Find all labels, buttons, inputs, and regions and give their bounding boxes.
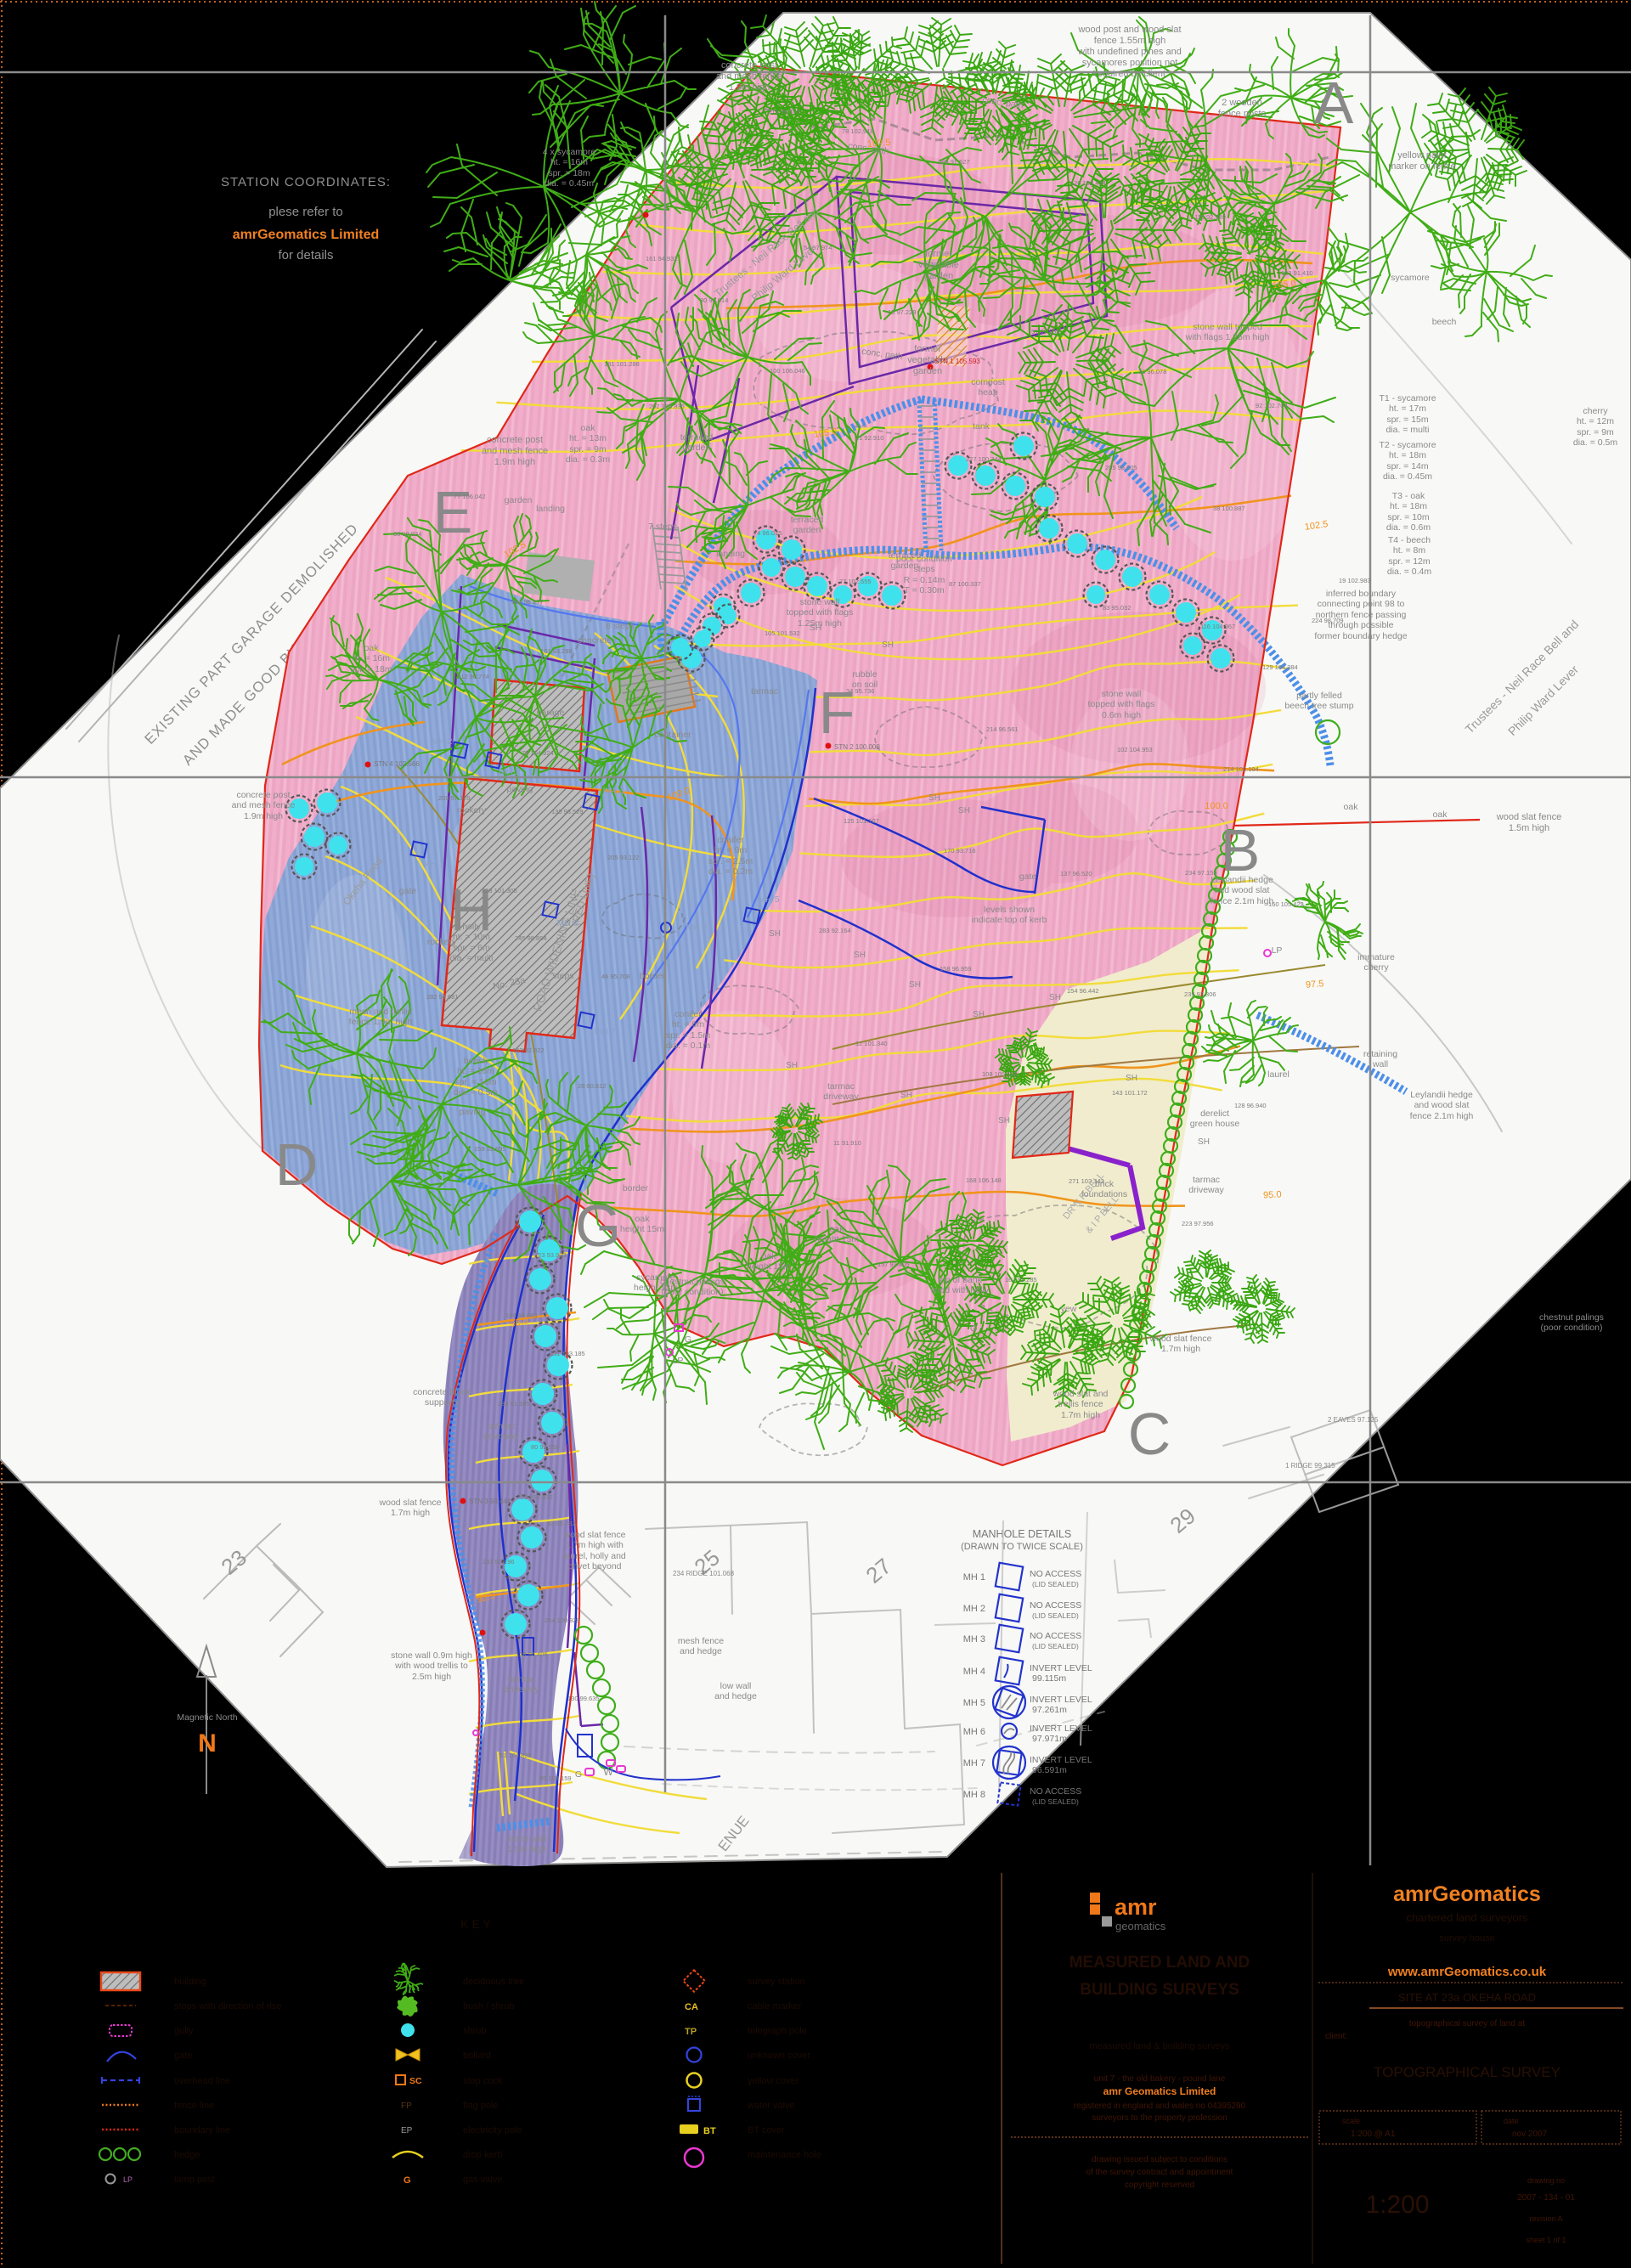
svg-text:scale: scale xyxy=(1342,2117,1360,2125)
svg-text:dia. = 0.45m: dia. = 0.45m xyxy=(1383,471,1432,482)
svg-text:212 96.774: 212 96.774 xyxy=(457,673,489,680)
svg-text:holly: holly xyxy=(462,922,481,932)
svg-text:amrGeomatics Limited: amrGeomatics Limited xyxy=(233,228,380,242)
svg-text:STN 1 105.593: STN 1 105.593 xyxy=(934,358,980,365)
svg-text:spr. = 18m: spr. = 18m xyxy=(548,168,590,178)
svg-text:100.0: 100.0 xyxy=(1205,801,1228,811)
svg-text:K E Y: K E Y xyxy=(460,1917,491,1931)
svg-text:wood slat fence: wood slat fence xyxy=(563,1530,626,1540)
svg-text:W: W xyxy=(603,1766,613,1778)
svg-text:lamp post: lamp post xyxy=(174,2175,215,2185)
svg-text:date: date xyxy=(1504,2117,1519,2125)
svg-text:TP: TP xyxy=(685,2027,697,2037)
svg-text:border: border xyxy=(623,1183,649,1193)
svg-text:36 96.078: 36 96.078 xyxy=(1138,368,1166,375)
svg-text:amrGeomatics: amrGeomatics xyxy=(1393,1882,1541,1906)
svg-text:TOPOGRAPHICAL SURVEY: TOPOGRAPHICAL SURVEY xyxy=(1374,2064,1560,2080)
svg-text:stone wall: stone wall xyxy=(800,597,840,607)
svg-text:and mesh fence: and mesh fence xyxy=(232,800,296,810)
svg-text:8 steps: 8 steps xyxy=(606,621,635,631)
svg-text:N: N xyxy=(198,1729,217,1757)
svg-text:stone wall: stone wall xyxy=(1102,689,1142,699)
svg-text:159 92.695: 159 92.695 xyxy=(474,1145,506,1153)
svg-text:G: G xyxy=(685,1334,691,1345)
svg-text:T2 - sycamore: T2 - sycamore xyxy=(1379,440,1436,450)
svg-text:landing: landing xyxy=(536,504,565,514)
svg-text:205 95.605: 205 95.605 xyxy=(1105,464,1137,471)
svg-text:Leylandii hedge: Leylandii hedge xyxy=(1211,875,1273,885)
svg-text:indicate top of kerb: indicate top of kerb xyxy=(972,915,1047,925)
svg-text:Leylandii hedge: Leylandii hedge xyxy=(1410,1090,1473,1100)
svg-text:1.9m high: 1.9m high xyxy=(494,457,535,467)
svg-text:MANHOLE DETAILS: MANHOLE DETAILS xyxy=(973,1528,1071,1540)
svg-text:130 99.635: 130 99.635 xyxy=(567,1695,600,1702)
svg-text:143 101.172: 143 101.172 xyxy=(1112,1089,1148,1097)
svg-text:STATION COORDINATES:: STATION COORDINATES: xyxy=(221,175,391,189)
svg-text:1.7m high with: 1.7m high with xyxy=(566,1540,624,1550)
svg-text:fence 2.1m high: fence 2.1m high xyxy=(1410,1111,1474,1121)
svg-text:214 103.104: 214 103.104 xyxy=(1223,765,1259,773)
svg-text:fence 1.55m high: fence 1.55m high xyxy=(1094,36,1165,46)
svg-text:amr: amr xyxy=(1115,1894,1157,1920)
svg-text:spr. = 1.5m: spr. = 1.5m xyxy=(666,1030,710,1041)
svg-text:telegraph pole: telegraph pole xyxy=(748,2026,807,2036)
svg-text:amr Geomatics Limited: amr Geomatics Limited xyxy=(1103,2085,1216,2097)
svg-text:laurel: laurel xyxy=(1267,1069,1290,1080)
svg-text:13 97.229: 13 97.229 xyxy=(888,308,916,316)
svg-text:LP: LP xyxy=(1272,945,1283,956)
svg-text:11 91.910: 11 91.910 xyxy=(833,1139,861,1147)
svg-text:149 94.683: 149 94.683 xyxy=(505,1312,538,1319)
svg-text:95.0: 95.0 xyxy=(1263,1189,1282,1200)
svg-text:1 RIDGE 99.315: 1 RIDGE 99.315 xyxy=(1285,1462,1335,1470)
svg-text:drop kerb: drop kerb xyxy=(463,2150,502,2160)
svg-text:97.5: 97.5 xyxy=(1306,979,1324,990)
svg-text:tarmac: tarmac xyxy=(508,1674,535,1684)
svg-text:MH 7: MH 7 xyxy=(594,1027,615,1037)
svg-text:283 91.385: 283 91.385 xyxy=(498,1400,530,1408)
svg-text:ht. = 16m: ht. = 16m xyxy=(550,157,588,167)
svg-text:0.6m high: 0.6m high xyxy=(1102,710,1141,720)
svg-text:yew: yew xyxy=(1061,1304,1077,1314)
svg-text:gully: gully xyxy=(174,2026,194,2036)
svg-text:A: A xyxy=(1314,70,1354,136)
svg-text:fence 2.1m high: fence 2.1m high xyxy=(1211,896,1274,906)
svg-text:183 91.410: 183 91.410 xyxy=(1281,269,1313,277)
svg-text:former: former xyxy=(925,249,952,259)
svg-text:SH: SH xyxy=(810,623,822,633)
svg-text:and mesh fence: and mesh fence xyxy=(482,446,548,456)
svg-text:MH 2: MH 2 xyxy=(431,736,452,747)
svg-text:spr. = 14m: spr. = 14m xyxy=(1386,461,1429,471)
svg-text:beech tree stump: beech tree stump xyxy=(1284,701,1353,711)
svg-text:97.261m: 97.261m xyxy=(1032,1705,1067,1715)
svg-text:spr. = 10m: spr. = 10m xyxy=(454,1077,497,1087)
svg-text:geomatics: geomatics xyxy=(1115,1920,1166,1932)
svg-text:garden: garden xyxy=(924,271,953,281)
svg-text:INVERT LEVEL: INVERT LEVEL xyxy=(1030,1755,1092,1765)
svg-text:46 95.708: 46 95.708 xyxy=(601,973,629,980)
svg-text:74 96.015: 74 96.015 xyxy=(753,529,782,537)
svg-text:1.5m high: 1.5m high xyxy=(1509,823,1549,833)
svg-text:CA: CA xyxy=(685,2002,698,2012)
svg-text:154 96.442: 154 96.442 xyxy=(1067,987,1099,995)
svg-text:inferred boundary: inferred boundary xyxy=(1326,589,1397,599)
svg-text:dia. = 0.1m: dia. = 0.1m xyxy=(666,1041,710,1051)
svg-text:MH 7: MH 7 xyxy=(963,1758,985,1769)
svg-text:oak: oak xyxy=(364,643,380,653)
svg-text:plese refer to: plese refer to xyxy=(268,205,343,219)
svg-text:driveway: driveway xyxy=(823,1092,859,1102)
svg-text:(LID SEALED): (LID SEALED) xyxy=(1032,1580,1079,1588)
svg-text:285 91.527: 285 91.527 xyxy=(938,158,970,166)
svg-text:sheet 1 of 1: sheet 1 of 1 xyxy=(1526,2236,1566,2244)
svg-text:spr. = 6m: spr. = 6m xyxy=(453,943,490,953)
svg-text:T3 - oak: T3 - oak xyxy=(1392,491,1425,501)
svg-text:oak: oak xyxy=(635,1214,651,1224)
svg-text:SH: SH xyxy=(854,951,866,960)
svg-text:stone wall 0.9m high: stone wall 0.9m high xyxy=(391,1650,472,1661)
svg-text:223 93.903: 223 93.903 xyxy=(534,1251,567,1259)
svg-text:yellow cover: yellow cover xyxy=(748,2076,799,2086)
svg-text:garden: garden xyxy=(683,443,711,453)
svg-text:51 97.855: 51 97.855 xyxy=(1031,328,1059,336)
svg-text:SH: SH xyxy=(1198,1137,1210,1147)
svg-text:spr. = 15m: spr. = 15m xyxy=(1386,415,1429,425)
svg-text:SH: SH xyxy=(973,1010,985,1019)
svg-text:34 95.736: 34 95.736 xyxy=(846,687,874,695)
svg-text:LP: LP xyxy=(673,1356,684,1366)
svg-text:survey station: survey station xyxy=(748,1977,805,1987)
svg-text:(DRAWN TO TWICE SCALE): (DRAWN TO TWICE SCALE) xyxy=(961,1542,1083,1552)
svg-text:concrete post: concrete post xyxy=(236,790,290,800)
svg-text:SH: SH xyxy=(1126,1074,1137,1083)
svg-text:surveyors to the property prof: surveyors to the property profession xyxy=(1092,2113,1227,2123)
svg-text:NO ACCESS: NO ACCESS xyxy=(1030,1569,1081,1579)
svg-text:bollard: bollard xyxy=(463,2051,491,2061)
svg-text:108 105.153: 108 105.153 xyxy=(982,1070,1018,1078)
svg-text:cable marker: cable marker xyxy=(748,2001,802,2011)
svg-text:209 97.109: 209 97.109 xyxy=(438,794,471,802)
svg-text:garden: garden xyxy=(793,525,821,535)
svg-text:BT cover: BT cover xyxy=(748,2125,785,2135)
svg-text:MH 5: MH 5 xyxy=(963,1698,985,1708)
svg-text:MH 3: MH 3 xyxy=(499,767,520,777)
svg-text:levels shown: levels shown xyxy=(984,905,1035,915)
svg-text:116 104.967: 116 104.967 xyxy=(1200,623,1235,630)
svg-text:100 106.046: 100 106.046 xyxy=(770,367,805,375)
svg-text:survey house: survey house xyxy=(1439,1933,1494,1944)
svg-text:D: D xyxy=(275,1131,319,1198)
svg-text:boundary line: boundary line xyxy=(174,2125,230,2135)
svg-text:75 104.924: 75 104.924 xyxy=(522,749,554,757)
svg-text:(LID SEALED): (LID SEALED) xyxy=(1032,1611,1079,1620)
svg-text:landing: landing xyxy=(716,549,745,559)
svg-text:wall: wall xyxy=(1372,1059,1388,1069)
svg-text:SH: SH xyxy=(786,1061,798,1070)
svg-text:233 93.196: 233 93.196 xyxy=(483,1558,515,1566)
svg-text:spr. = 9m: spr. = 9m xyxy=(569,444,607,454)
svg-text:87 100.337: 87 100.337 xyxy=(949,580,981,588)
svg-text:80 92.553: 80 92.553 xyxy=(531,1443,559,1451)
svg-text:overhead line: overhead line xyxy=(174,2076,230,2086)
svg-text:wood slat and: wood slat and xyxy=(1053,1389,1109,1399)
svg-text:maintenance hole: maintenance hole xyxy=(748,2150,821,2160)
svg-text:SH: SH xyxy=(909,980,921,990)
svg-text:of the survey contract and app: of the survey contract and appointment xyxy=(1086,2168,1233,2177)
svg-text:concrete post: concrete post xyxy=(487,435,543,445)
svg-text:wood slat fence: wood slat fence xyxy=(379,1498,442,1508)
svg-text:78 102.918: 78 102.918 xyxy=(842,127,874,135)
svg-text:tarmac: tarmac xyxy=(751,686,778,697)
svg-text:ht. = 9m: ht. = 9m xyxy=(714,845,747,855)
svg-text:ht. = 18m: ht. = 18m xyxy=(1390,501,1427,511)
svg-text:rockery: rockery xyxy=(457,805,487,815)
svg-text:electricity pole: electricity pole xyxy=(463,2125,522,2135)
svg-text:spr. = 18m: spr. = 18m xyxy=(350,664,392,674)
svg-text:former: former xyxy=(914,344,941,354)
svg-text:137 96.520: 137 96.520 xyxy=(1060,870,1092,877)
svg-text:LP: LP xyxy=(123,2175,133,2184)
svg-text:concrete block: concrete block xyxy=(413,1387,471,1397)
svg-text:ht. = 17m: ht. = 17m xyxy=(1389,403,1426,414)
svg-text:revision A: revision A xyxy=(1529,2214,1562,2223)
svg-text:7 steps: 7 steps xyxy=(648,522,677,532)
svg-text:building: building xyxy=(174,1977,206,1987)
svg-text:1.9m high: 1.9m high xyxy=(729,82,770,93)
svg-text:245 98.894: 245 98.894 xyxy=(515,934,547,942)
svg-text:161 94.932: 161 94.932 xyxy=(646,255,678,262)
svg-text:NO ACCESS: NO ACCESS xyxy=(1030,1631,1081,1641)
svg-text:registered in england and wale: registered in england and wales no 04395… xyxy=(1074,2102,1246,2111)
svg-text:ht. = 8m: ht. = 8m xyxy=(1393,545,1425,556)
svg-text:gate: gate xyxy=(399,886,417,896)
svg-text:gas valve: gas valve xyxy=(463,2175,502,2185)
svg-text:and wood slat: and wood slat xyxy=(1215,885,1270,895)
svg-text:dia. = 0.2m: dia. = 0.2m xyxy=(708,866,753,877)
svg-text:privet beyond: privet beyond xyxy=(567,1561,621,1571)
svg-text:cherry: cherry xyxy=(1583,406,1608,416)
svg-text:224 98.709: 224 98.709 xyxy=(1312,617,1344,624)
svg-text:FP: FP xyxy=(401,2102,412,2111)
svg-text:99.115m: 99.115m xyxy=(1032,1673,1066,1684)
svg-text:nov 2007: nov 2007 xyxy=(1512,2130,1548,2139)
svg-text:1.5m high: 1.5m high xyxy=(507,1844,546,1854)
svg-text:1:200: 1:200 xyxy=(1365,2191,1429,2219)
svg-text:with wood trellis to: with wood trellis to xyxy=(394,1661,468,1671)
svg-text:tarmac: tarmac xyxy=(1193,1175,1220,1185)
svg-text:R = 0.14m: R = 0.14m xyxy=(904,575,945,585)
svg-text:120 103.474: 120 103.474 xyxy=(1070,179,1106,187)
svg-text:MH 3: MH 3 xyxy=(963,1634,985,1645)
svg-text:tarmac: tarmac xyxy=(827,1081,855,1092)
svg-text:38 100.887: 38 100.887 xyxy=(1213,505,1245,512)
svg-text:conifer: conifer xyxy=(717,835,744,845)
svg-text:1.7m high: 1.7m high xyxy=(391,1508,430,1518)
svg-text:170 93.716: 170 93.716 xyxy=(944,847,976,855)
svg-text:height 15m: height 15m xyxy=(815,1234,859,1244)
svg-text:oak: oak xyxy=(1344,802,1359,812)
svg-text:www.amrGeomatics.co.uk: www.amrGeomatics.co.uk xyxy=(1387,1965,1547,1979)
svg-text:92 102.708: 92 102.708 xyxy=(1256,402,1288,409)
svg-text:sycamore: sycamore xyxy=(636,1272,675,1283)
svg-text:for details: for details xyxy=(278,248,333,262)
svg-text:C: C xyxy=(1128,1401,1171,1467)
svg-text:wood slat fence: wood slat fence xyxy=(1149,1334,1212,1344)
svg-text:ht. = 13m: ht. = 13m xyxy=(569,433,607,443)
svg-text:partly felled: partly felled xyxy=(1296,691,1342,701)
svg-text:MH 4: MH 4 xyxy=(602,787,624,797)
svg-text:garden: garden xyxy=(913,366,942,376)
svg-text:128 96.940: 128 96.940 xyxy=(1234,1102,1267,1109)
svg-text:283 92.164: 283 92.164 xyxy=(819,927,851,934)
svg-text:poor condition: poor condition xyxy=(896,554,952,564)
svg-text:vegetable: vegetable xyxy=(918,260,959,270)
svg-text:138 93.529: 138 93.529 xyxy=(551,808,584,815)
svg-text:container: container xyxy=(654,730,691,740)
svg-text:topped with flags: topped with flags xyxy=(1088,699,1155,709)
svg-text:paving: paving xyxy=(507,784,533,794)
svg-text:topped with flags: topped with flags xyxy=(787,607,854,618)
svg-text:28 90.812: 28 90.812 xyxy=(578,1082,606,1090)
svg-text:and wood slat: and wood slat xyxy=(1414,1100,1470,1110)
svg-text:ht. = 18m: ht. = 18m xyxy=(1389,450,1426,460)
svg-text:4 x sycamore: 4 x sycamore xyxy=(543,147,596,157)
svg-text:SH: SH xyxy=(900,1091,912,1100)
svg-text:T = 0.30m: T = 0.30m xyxy=(904,585,945,595)
svg-text:21 92.910: 21 92.910 xyxy=(855,434,883,442)
svg-text:spr. = 9m: spr. = 9m xyxy=(1577,427,1614,437)
svg-text:102 104.953: 102 104.953 xyxy=(1117,746,1153,753)
svg-text:157 93.405: 157 93.405 xyxy=(878,1261,910,1268)
svg-text:167 91.285: 167 91.285 xyxy=(1005,1276,1037,1284)
svg-text:INVERT LEVEL: INVERT LEVEL xyxy=(1030,1695,1092,1705)
svg-text:235 93.306: 235 93.306 xyxy=(1184,990,1216,998)
svg-text:concrete: concrete xyxy=(578,635,612,646)
svg-text:1.7m high: 1.7m high xyxy=(1161,1344,1200,1354)
svg-text:drawing issued subject to cond: drawing issued subject to conditions xyxy=(1092,2155,1227,2164)
svg-text:12 101.340: 12 101.340 xyxy=(855,1040,888,1047)
svg-text:30 96.014: 30 96.014 xyxy=(700,296,728,304)
svg-text:bush / shrub: bush / shrub xyxy=(463,2001,515,2011)
svg-text:MH 8: MH 8 xyxy=(963,1790,985,1800)
svg-text:EP: EP xyxy=(401,2126,413,2135)
svg-text:yellow paint: yellow paint xyxy=(1397,150,1446,161)
svg-text:MEASURED LAND AND: MEASURED LAND AND xyxy=(1069,1954,1250,1972)
svg-text:dia. = 0.45m: dia. = 0.45m xyxy=(545,178,594,189)
svg-text:drawing no: drawing no xyxy=(1527,2176,1565,2185)
svg-text:51 104.899: 51 104.899 xyxy=(499,1752,532,1759)
svg-text:trellis fence: trellis fence xyxy=(1058,1399,1103,1409)
svg-text:264 100.929: 264 100.929 xyxy=(545,1616,580,1624)
svg-text:dia. = 0.5m: dia. = 0.5m xyxy=(454,1087,498,1097)
svg-text:hedge: hedge xyxy=(174,2150,200,2160)
svg-text:SH: SH xyxy=(1049,993,1061,1002)
svg-text:INVERT LEVEL: INVERT LEVEL xyxy=(1030,1724,1092,1734)
svg-text:NO ACCESS: NO ACCESS xyxy=(1030,1786,1081,1797)
svg-text:gate: gate xyxy=(174,2051,192,2061)
svg-text:MH 5: MH 5 xyxy=(758,894,779,905)
svg-text:beech: beech xyxy=(464,1056,488,1066)
svg-text:2007 - 134 - 01: 2007 - 134 - 01 xyxy=(1517,2193,1575,2203)
svg-text:181 101.288: 181 101.288 xyxy=(604,360,640,368)
svg-text:214 96.561: 214 96.561 xyxy=(986,725,1019,733)
svg-text:(LID SEALED): (LID SEALED) xyxy=(1032,1642,1079,1650)
svg-text:fence 1.9m high: fence 1.9m high xyxy=(349,1017,413,1027)
svg-text:MH 6: MH 6 xyxy=(686,922,707,933)
svg-text:234 RIDGE 101.068: 234 RIDGE 101.068 xyxy=(673,1570,735,1577)
svg-text:MH 2: MH 2 xyxy=(963,1604,985,1614)
svg-text:G: G xyxy=(404,2175,411,2186)
svg-text:161 93.298: 161 93.298 xyxy=(540,647,573,655)
svg-text:168 106.148: 168 106.148 xyxy=(966,1176,1002,1184)
svg-text:and hedge: and hedge xyxy=(680,1646,722,1656)
svg-text:mesh and trellis: mesh and trellis xyxy=(349,1007,412,1017)
svg-text:2.5m high: 2.5m high xyxy=(412,1672,451,1682)
svg-text:MH 1: MH 1 xyxy=(963,1572,985,1583)
svg-text:steps: steps xyxy=(913,564,934,574)
svg-text:mesh fence: mesh fence xyxy=(678,1636,724,1646)
svg-text:NO ACCESS: NO ACCESS xyxy=(1030,1600,1081,1611)
svg-text:oak: oak xyxy=(581,423,596,433)
svg-text:223 97.956: 223 97.956 xyxy=(1182,1220,1214,1227)
svg-text:heap: heap xyxy=(978,387,998,398)
svg-text:chartered land surveyors: chartered land surveyors xyxy=(1406,1911,1528,1924)
svg-text:beech: beech xyxy=(1432,317,1457,327)
svg-text:158 96.959: 158 96.959 xyxy=(940,965,972,973)
svg-text:tarmac: tarmac xyxy=(488,1421,515,1431)
svg-text:MH 1: MH 1 xyxy=(422,859,443,869)
svg-text:wood slat fence: wood slat fence xyxy=(1496,812,1561,822)
svg-text:2 wooden: 2 wooden xyxy=(1222,98,1262,108)
svg-text:ht. = 12m: ht. = 12m xyxy=(1577,416,1614,426)
svg-text:216 96.473: 216 96.473 xyxy=(768,108,800,116)
svg-text:tank: tank xyxy=(973,421,990,432)
svg-text:green house: green house xyxy=(1190,1119,1240,1129)
svg-text:Magnetic North: Magnetic North xyxy=(177,1712,237,1723)
svg-text:10?.5: 10?.5 xyxy=(867,138,891,150)
svg-text:lined with holly: lined with holly xyxy=(931,1285,990,1295)
svg-text:driveway: driveway xyxy=(1188,1185,1224,1195)
svg-text:128 96.406: 128 96.406 xyxy=(516,1650,548,1658)
svg-text:required by client: required by client xyxy=(1094,69,1165,79)
svg-text:202 103.836: 202 103.836 xyxy=(649,403,685,410)
svg-text:stop cock: stop cock xyxy=(463,2076,503,2086)
svg-text:SITE AT 23a OKEHA ROAD: SITE AT 23a OKEHA ROAD xyxy=(1398,1991,1536,2004)
svg-text:1:200 @ A1: 1:200 @ A1 xyxy=(1351,2130,1396,2139)
svg-text:spr. = 10m: spr. = 10m xyxy=(1387,512,1430,522)
svg-text:T4 - beech: T4 - beech xyxy=(1388,535,1431,545)
svg-text:205 93.122: 205 93.122 xyxy=(607,854,640,861)
svg-text:95 103.159: 95 103.159 xyxy=(539,1774,572,1782)
svg-text:19 102.983: 19 102.983 xyxy=(1339,577,1371,584)
svg-text:compost: compost xyxy=(971,377,1005,387)
svg-text:marker on fence: marker on fence xyxy=(1388,161,1455,172)
svg-text:INVERT LEVEL: INVERT LEVEL xyxy=(1030,1663,1092,1673)
svg-text:dia. = 0.4m: dia. = 0.4m xyxy=(1387,567,1431,577)
svg-text:129 104.384: 129 104.384 xyxy=(1262,663,1298,671)
svg-text:dia. = 0.6m: dia. = 0.6m xyxy=(1386,522,1431,533)
svg-text:terraced: terraced xyxy=(791,515,824,525)
svg-text:253 101.305: 253 101.305 xyxy=(482,887,517,894)
svg-text:ht. = 6m: ht. = 6m xyxy=(672,1019,704,1030)
svg-text:BT: BT xyxy=(703,2126,716,2136)
svg-text:and mesh fence: and mesh fence xyxy=(716,71,782,82)
svg-text:125 101.107: 125 101.107 xyxy=(844,817,879,825)
svg-text:dia. = 0.3m: dia. = 0.3m xyxy=(566,454,610,465)
svg-text:163 96.277: 163 96.277 xyxy=(511,598,544,606)
svg-text:SH: SH xyxy=(882,640,894,650)
